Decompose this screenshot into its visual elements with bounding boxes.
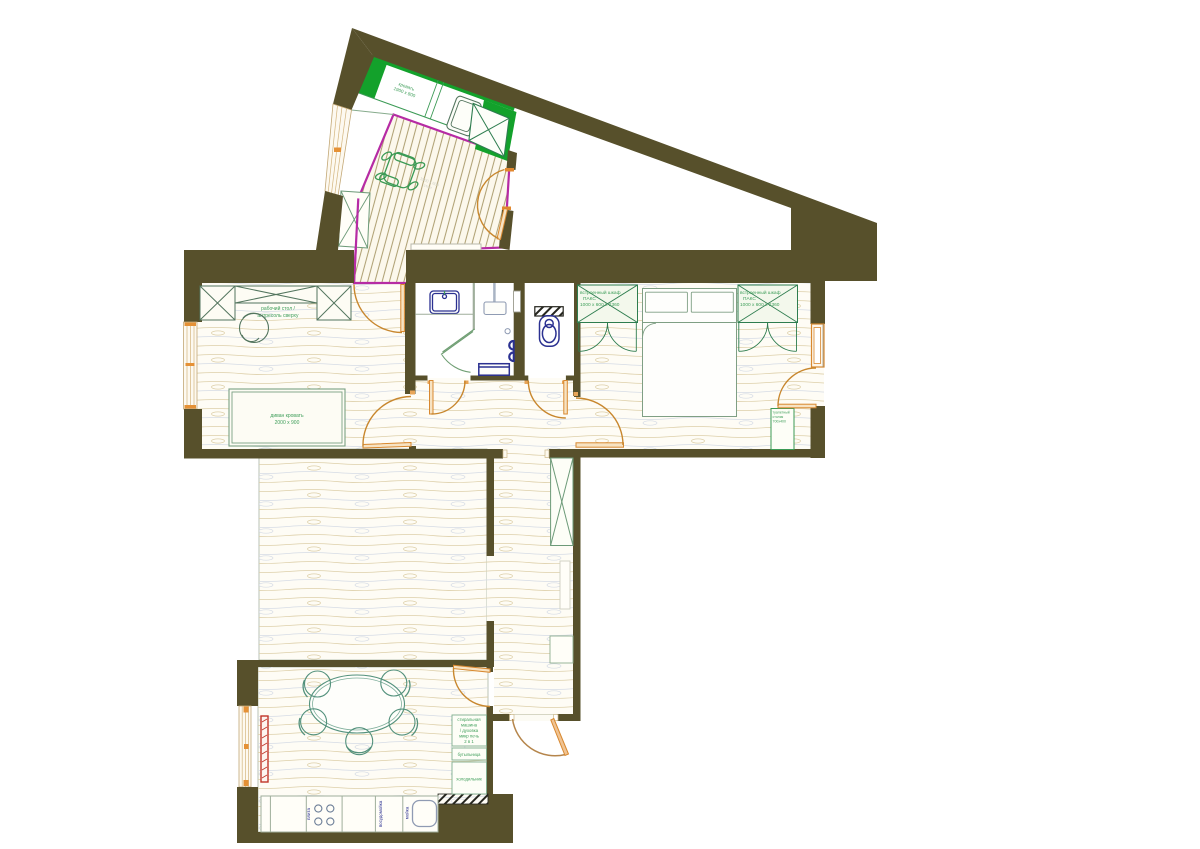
svg-text:ПАКС: ПАКС [743,296,756,302]
svg-text:встроенный шкаф: встроенный шкаф [580,289,621,296]
svg-text:посудомойка: посудомойка [378,800,383,827]
svg-text:рабочий стол /: рабочий стол / [261,305,295,312]
svg-text:/ духовка: / духовка [460,728,479,733]
svg-text:ПАКС: ПАКС [583,296,596,302]
svg-text:стиральная: стиральная [457,717,481,722]
svg-text:2000 х 900: 2000 х 900 [275,420,300,426]
svg-text:бутыльница: бутыльница [458,752,482,757]
svg-text:туалетный: туалетный [773,411,790,415]
svg-text:1000 х 600 х 2360: 1000 х 600 х 2360 [580,302,620,308]
svg-text:встроенный шкаф: встроенный шкаф [740,289,781,296]
svg-text:столик: столик [773,415,784,419]
svg-text:машина: машина [461,723,478,728]
svg-text:700х400: 700х400 [773,420,786,424]
svg-text:холодильник: холодильник [456,777,482,782]
svg-text:2 в 1: 2 в 1 [464,739,474,744]
svg-text:1000 х 600 х 2360: 1000 х 600 х 2360 [740,302,780,308]
svg-text:антресоль сверху: антресоль сверху [257,313,299,319]
svg-text:диван кровать: диван кровать [270,413,304,419]
svg-text:плита: плита [306,808,311,820]
svg-text:микр печь: микр печь [459,734,480,739]
svg-text:мойка: мойка [405,806,410,819]
